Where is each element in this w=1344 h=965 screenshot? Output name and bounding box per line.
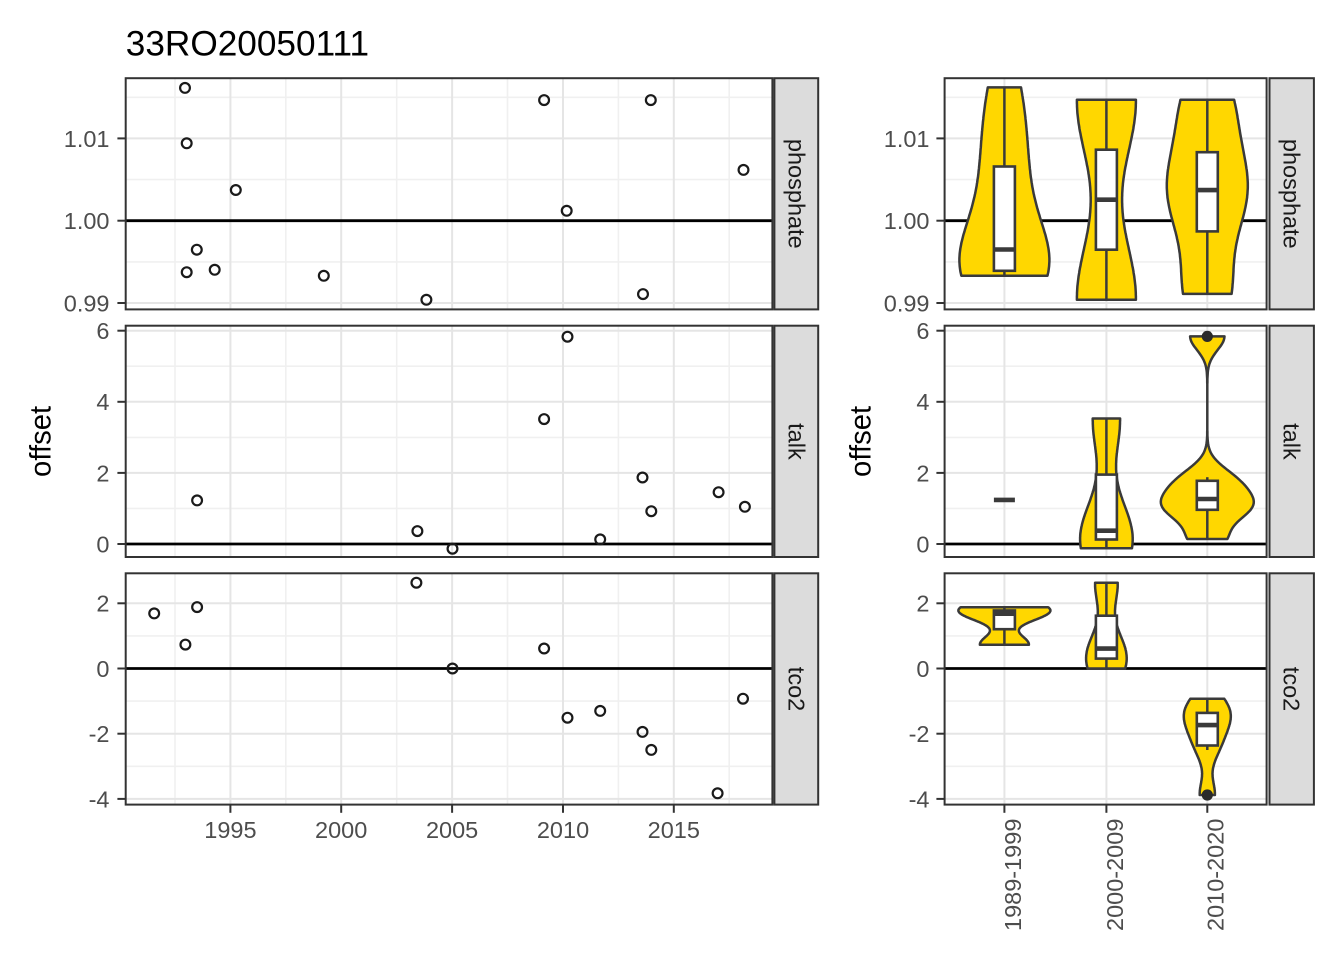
svg-text:-4: -4 [89,786,110,812]
svg-text:6: 6 [96,318,109,344]
svg-text:4: 4 [96,389,109,415]
svg-text:1.01: 1.01 [64,126,110,152]
svg-text:0: 0 [96,531,109,557]
svg-text:offset: offset [845,406,878,477]
svg-text:tco2: tco2 [1279,667,1305,711]
svg-text:1.00: 1.00 [884,208,930,234]
svg-text:0: 0 [916,656,929,682]
svg-text:2: 2 [916,591,929,617]
svg-text:0.99: 0.99 [884,290,930,316]
svg-text:2010: 2010 [537,817,589,843]
svg-text:phosphate: phosphate [1279,139,1305,249]
svg-text:0: 0 [96,656,109,682]
svg-text:2005: 2005 [426,817,478,843]
svg-text:1995: 1995 [204,817,256,843]
svg-text:2010-2020: 2010-2020 [1203,819,1229,931]
svg-text:6: 6 [916,318,929,344]
svg-text:4: 4 [916,389,929,415]
svg-text:33RO20050111: 33RO20050111 [126,24,369,63]
svg-text:talk: talk [1279,423,1305,460]
svg-text:2: 2 [96,460,109,486]
svg-text:offset: offset [25,406,58,477]
svg-text:phosphate: phosphate [783,139,809,249]
svg-text:2000-2009: 2000-2009 [1102,819,1128,931]
svg-text:-4: -4 [909,786,930,812]
svg-text:tco2: tco2 [783,667,809,711]
svg-text:2: 2 [96,591,109,617]
svg-text:0: 0 [916,531,929,557]
svg-text:0.99: 0.99 [64,290,110,316]
svg-text:1989-1999: 1989-1999 [1000,819,1026,931]
svg-text:2015: 2015 [648,817,700,843]
svg-text:1.00: 1.00 [64,208,110,234]
svg-text:1.01: 1.01 [884,126,930,152]
svg-text:2000: 2000 [315,817,367,843]
svg-text:talk: talk [783,423,809,460]
svg-text:-2: -2 [89,721,110,747]
svg-text:-2: -2 [909,721,930,747]
svg-text:2: 2 [916,460,929,486]
